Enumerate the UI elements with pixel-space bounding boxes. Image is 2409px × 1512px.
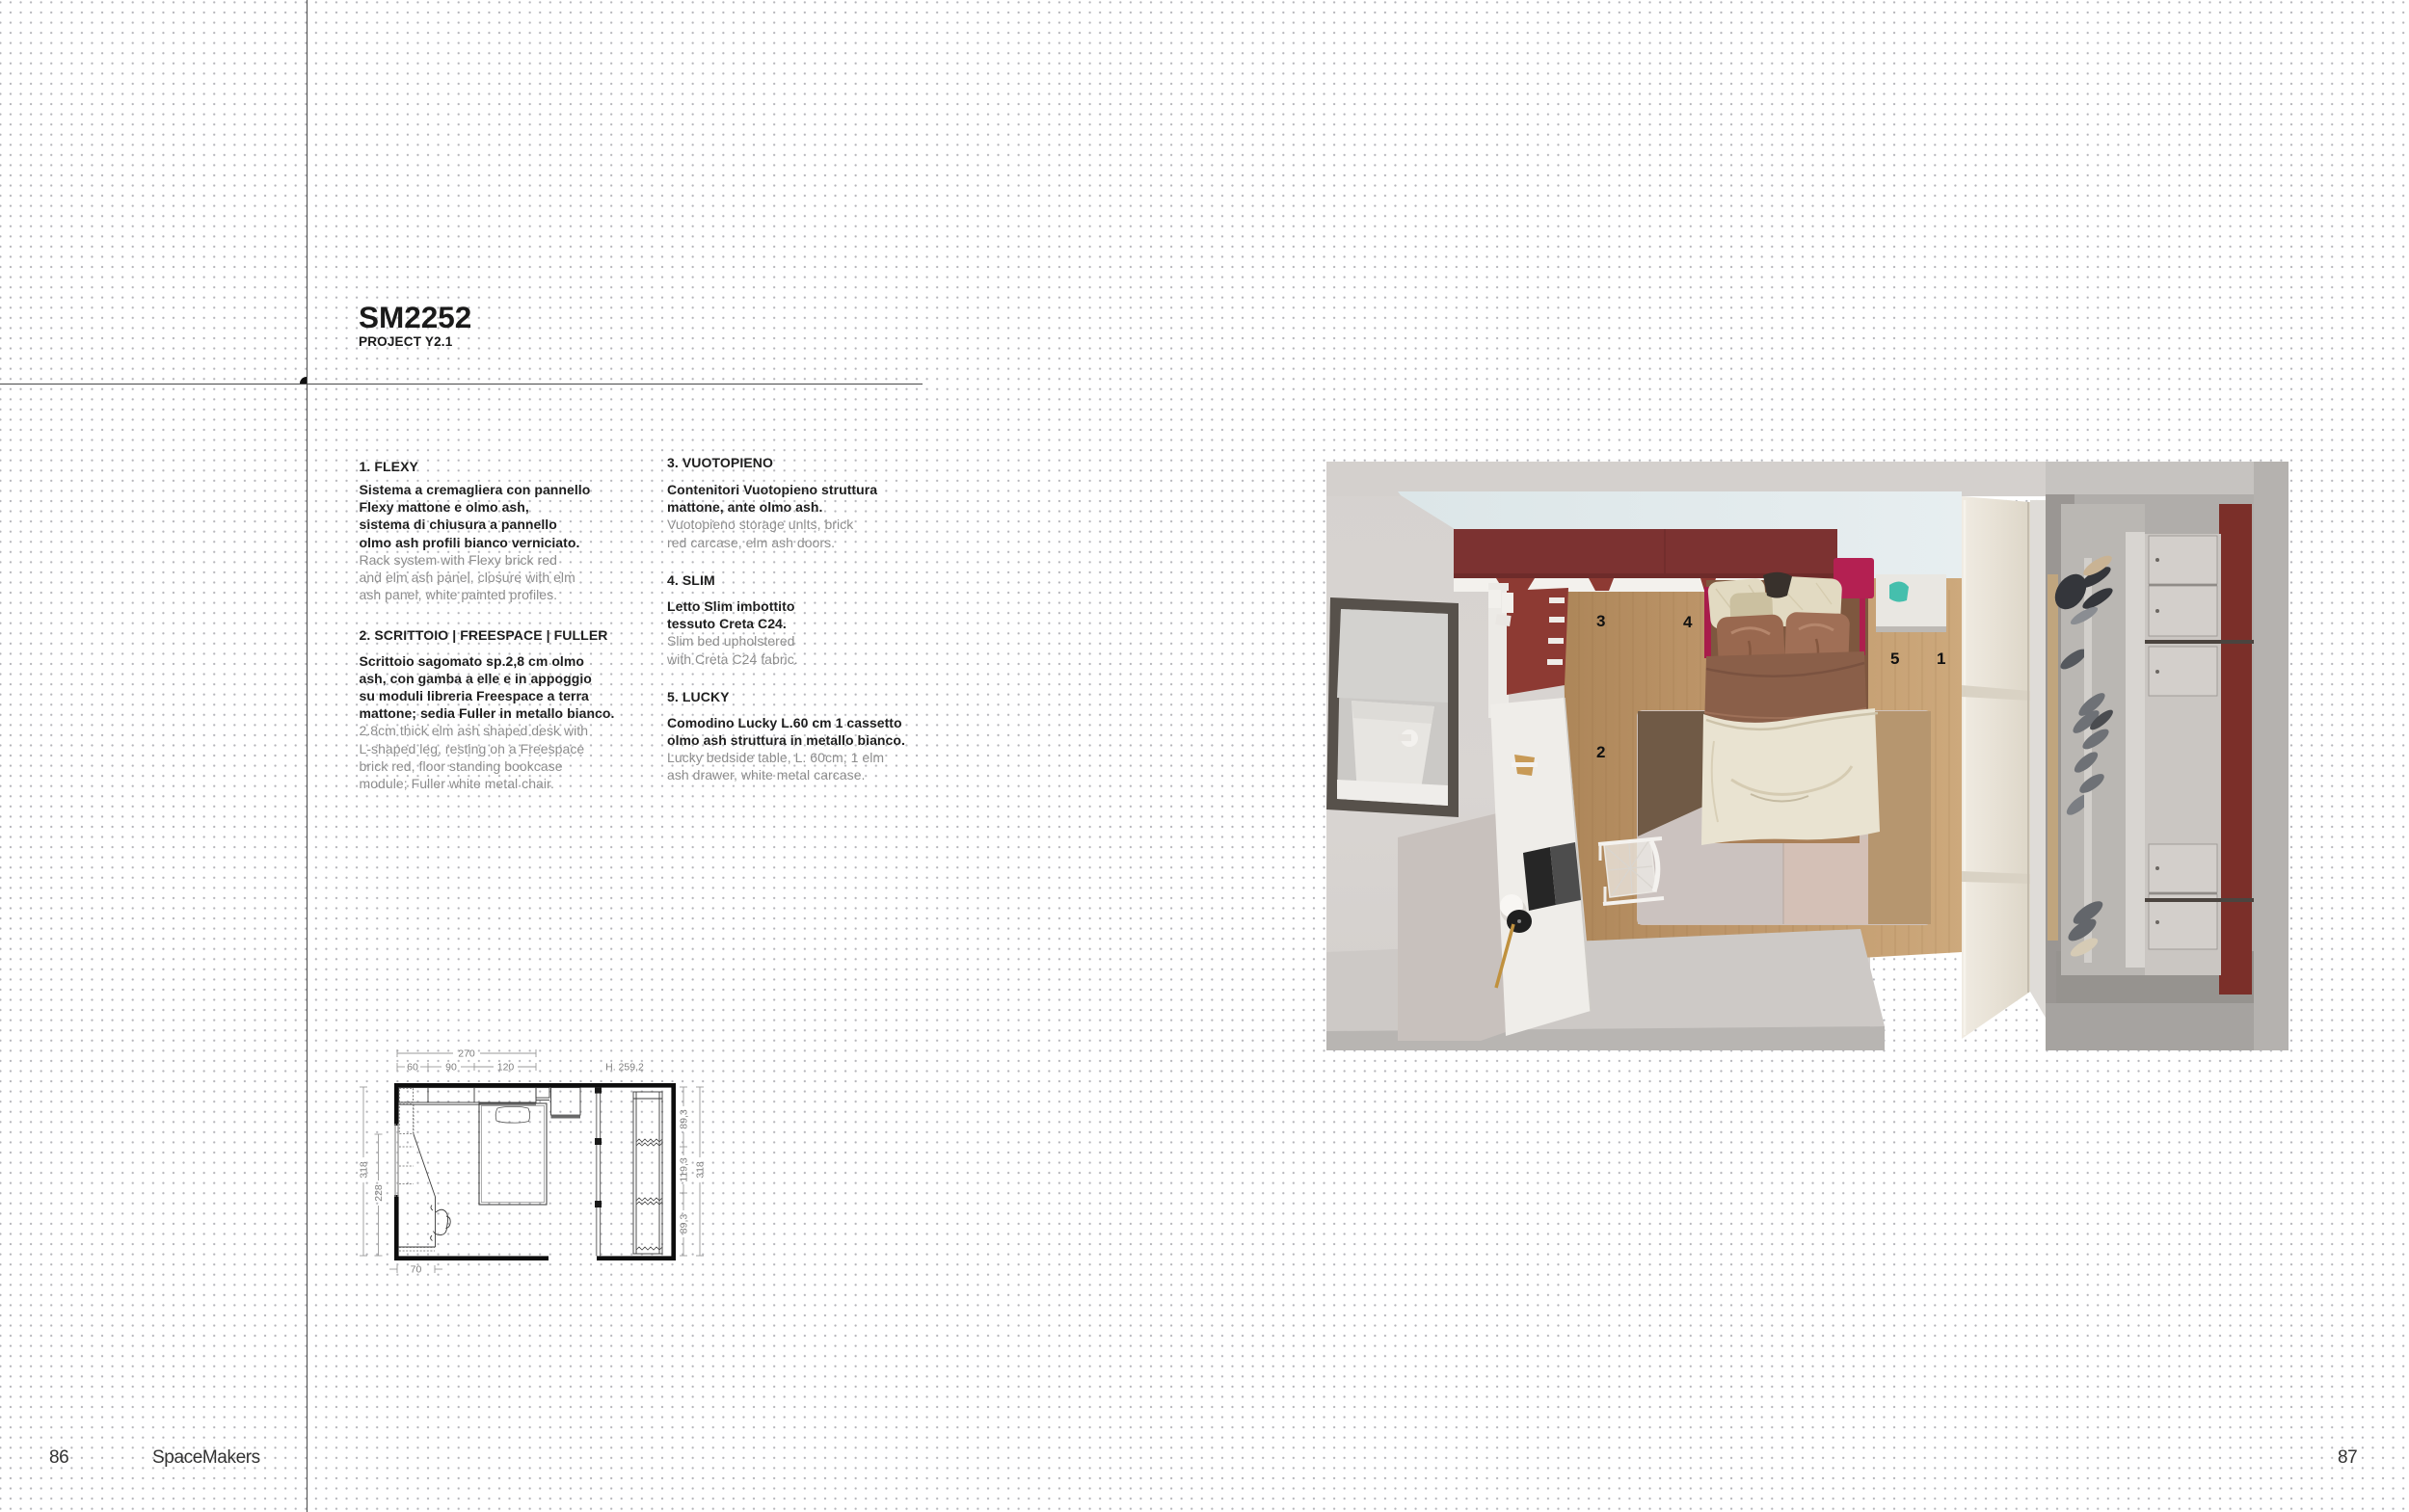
svg-text:318: 318 [359, 1161, 370, 1179]
svg-text:119,3: 119,3 [679, 1157, 690, 1182]
svg-text:3: 3 [1596, 612, 1605, 630]
svg-text:4: 4 [1683, 613, 1693, 631]
svg-text:270: 270 [458, 1048, 475, 1060]
svg-text:60: 60 [407, 1062, 418, 1074]
svg-text:90: 90 [445, 1062, 457, 1074]
svg-text:89,3: 89,3 [679, 1109, 690, 1129]
svg-text:2: 2 [1596, 743, 1605, 761]
svg-text:5: 5 [1890, 650, 1899, 668]
svg-text:120: 120 [497, 1062, 515, 1074]
svg-text:89,3: 89,3 [679, 1214, 690, 1234]
svg-text:H. 259,2: H. 259,2 [605, 1062, 644, 1074]
svg-text:318: 318 [695, 1161, 707, 1179]
svg-text:1: 1 [1937, 650, 1945, 668]
svg-text:228: 228 [373, 1184, 385, 1202]
svg-text:70: 70 [411, 1264, 422, 1276]
